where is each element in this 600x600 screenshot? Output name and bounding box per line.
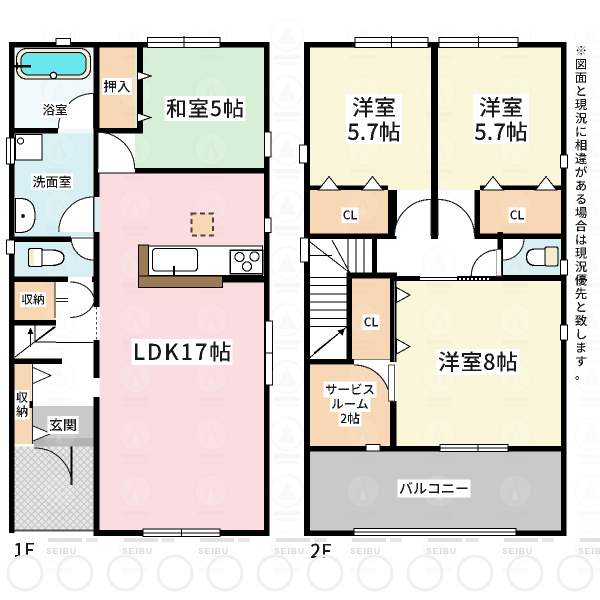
svg-text:SEIBU: SEIBU <box>274 546 305 556</box>
svg-text:SEIBU: SEIBU <box>198 546 229 556</box>
svg-text:SEIBU: SEIBU <box>122 546 153 556</box>
svg-text:SEIBU: SEIBU <box>426 546 457 556</box>
svg-text:SEIBU: SEIBU <box>578 546 600 556</box>
svg-text:SEIBU: SEIBU <box>350 546 381 556</box>
svg-text:SEIBU: SEIBU <box>46 546 77 556</box>
svg-text:SEIBU: SEIBU <box>502 546 533 556</box>
